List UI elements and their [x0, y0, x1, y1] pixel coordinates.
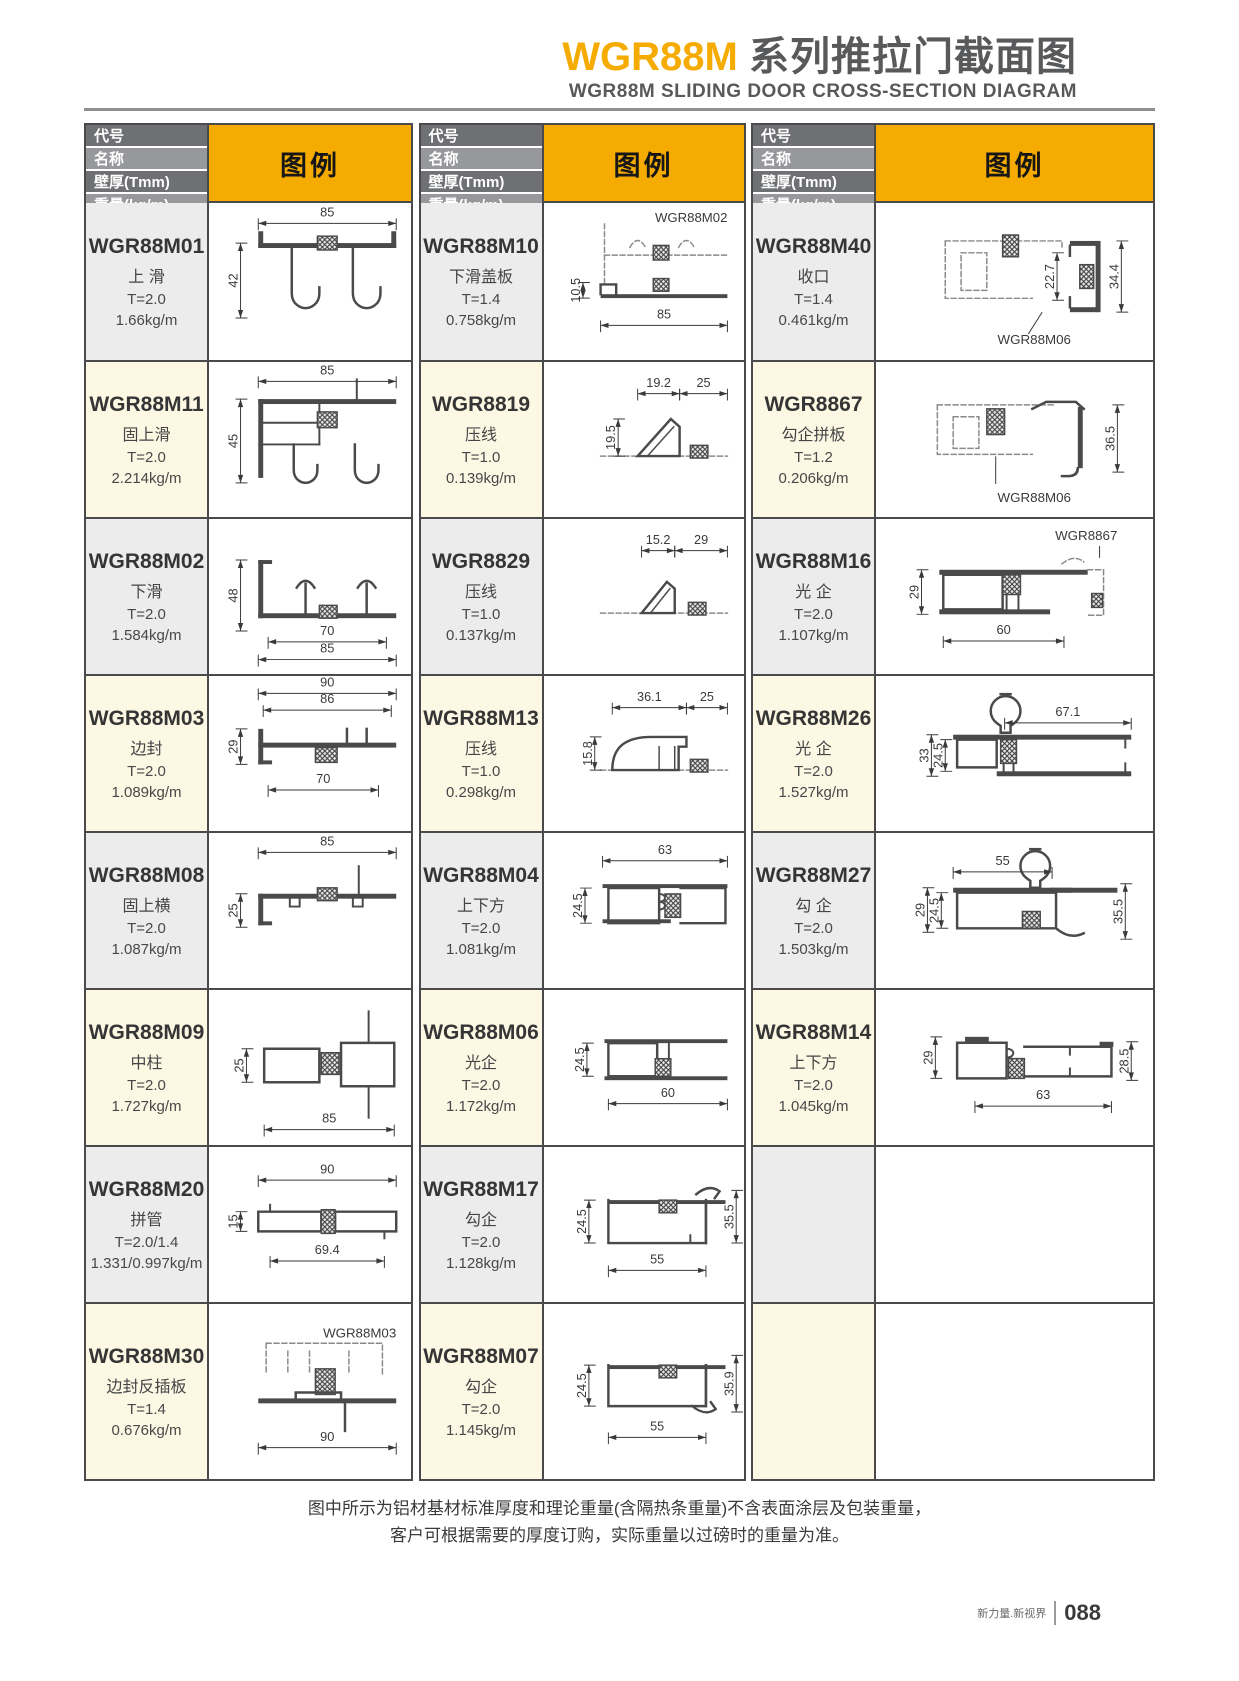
profile-thickness: T=2.0/1.4: [115, 1234, 179, 1251]
profile-name: 固上滑: [122, 421, 170, 445]
profile-row: WGR88M01 上 滑 T=2.0 1.66kg/m 8542: [86, 203, 411, 360]
profile-thickness: T=1.4: [462, 291, 501, 308]
profile-diagram-cell: 10.585WGR88M02: [544, 203, 744, 360]
page-content: WGR88M 系列推拉门截面图 WGR88M SLIDING DOOR CROS…: [0, 0, 1239, 1549]
rows-column-1: WGR88M01 上 滑 T=2.0 1.66kg/m 8542 WGR88M1…: [86, 203, 411, 1479]
profile-name: 勾企拼板: [781, 421, 845, 445]
profile-diagram-cell: 24.560: [544, 990, 744, 1145]
profile-code: WGR8867: [764, 393, 862, 417]
svg-text:67.1: 67.1: [1055, 704, 1080, 719]
profile-code: WGR88M09: [89, 1021, 205, 1045]
profile-diagram-cell: 90862970: [209, 676, 411, 831]
profile-diagram-cell: [876, 1304, 1153, 1479]
profile-thickness: T=2.0: [462, 1077, 501, 1094]
profile-name: 光 企: [795, 735, 831, 759]
profile-code: WGR88M01: [89, 235, 205, 259]
profile-row: WGR8819 压线 T=1.0 0.139kg/m 19.22519.5: [421, 360, 744, 517]
profile-thickness: T=1.2: [794, 449, 833, 466]
profile-info-cell: WGR8819 压线 T=1.0 0.139kg/m: [421, 362, 544, 517]
profile-table: 代号 名称 壁厚(Tmm) 重量(kg/m) 图例 WGR88M01 上 滑 T…: [84, 123, 1155, 1481]
rows-column-3: WGR88M40 收口 T=1.4 0.461kg/m 22.734.4WGR8…: [753, 203, 1153, 1479]
profile-thickness: T=2.0: [794, 1077, 833, 1094]
profile-info-cell: WGR88M14 上下方 T=2.0 1.045kg/m: [753, 990, 876, 1145]
profile-weight: 1.107kg/m: [778, 627, 848, 644]
profile-row: WGR88M04 上下方 T=2.0 1.081kg/m 6324.5: [421, 831, 744, 988]
svg-text:WGR88M03: WGR88M03: [323, 1325, 396, 1340]
svg-text:36.1: 36.1: [637, 690, 662, 704]
profile-code: WGR88M27: [756, 864, 872, 888]
svg-text:25: 25: [231, 1058, 246, 1072]
svg-text:24.5: 24.5: [573, 1047, 587, 1072]
profile-code: WGR8819: [432, 393, 530, 417]
header-label-thickness: 壁厚(Tmm): [421, 171, 542, 192]
svg-text:15: 15: [226, 1214, 241, 1228]
svg-text:24.5: 24.5: [574, 1373, 588, 1398]
profile-name: 勾 企: [795, 892, 831, 916]
profile-info-cell: WGR88M16 光 企 T=2.0 1.107kg/m: [753, 519, 876, 674]
profile-code: WGR88M07: [423, 1345, 539, 1369]
svg-text:29: 29: [694, 533, 708, 547]
profile-code: WGR88M04: [423, 864, 539, 888]
svg-text:55: 55: [650, 1420, 664, 1434]
profile-thickness: T=2.0: [127, 1077, 166, 1094]
page-number: 088: [1064, 1600, 1101, 1626]
profile-row: WGR88M07 勾企 T=2.0 1.145kg/m 24.55535.9: [421, 1302, 744, 1479]
cross-section-diagram: 10.585WGR88M02: [544, 203, 744, 360]
profile-name: 光企: [465, 1049, 497, 1073]
legend-header: 图例: [544, 125, 744, 201]
profile-info-cell: WGR88M20 拼管 T=2.0/1.4 1.331/0.997kg/m: [86, 1147, 209, 1302]
profile-diagram-cell: 2960WGR8867: [876, 519, 1153, 674]
profile-name: 压线: [465, 735, 497, 759]
profile-code: WGR88M40: [756, 235, 872, 259]
cross-section-diagram: 6324.5: [544, 833, 744, 988]
profile-info-cell: WGR88M01 上 滑 T=2.0 1.66kg/m: [86, 203, 209, 360]
profile-thickness: T=1.0: [462, 449, 501, 466]
profile-info-cell: [753, 1304, 876, 1479]
profile-name: 压线: [465, 421, 497, 445]
profile-name: 拼管: [130, 1206, 162, 1230]
svg-text:25: 25: [226, 903, 241, 917]
profile-thickness: T=2.0: [127, 920, 166, 937]
profile-row: WGR88M20 拼管 T=2.0/1.4 1.331/0.997kg/m 90…: [86, 1145, 411, 1302]
svg-text:25: 25: [696, 376, 710, 390]
footer-divider: [1054, 1601, 1056, 1625]
profile-info-cell: WGR8867 勾企拼板 T=1.2 0.206kg/m: [753, 362, 876, 517]
profile-row: WGR88M06 光企 T=2.0 1.172kg/m 24.560: [421, 988, 744, 1145]
table-header-3: 代号 名称 壁厚(Tmm) 重量(kg/m) 图例: [753, 125, 1153, 203]
profile-row: WGR88M27 勾 企 T=2.0 1.503kg/m 552924.535.…: [753, 831, 1153, 988]
profile-diagram-cell: [876, 1147, 1153, 1302]
header-label-code: 代号: [421, 125, 542, 146]
svg-text:29: 29: [912, 903, 927, 917]
column-group-2: 代号 名称 壁厚(Tmm) 重量(kg/m) 图例 WGR88M10 下滑盖板 …: [419, 123, 746, 1481]
profile-diagram-cell: 90WGR88M03: [209, 1304, 411, 1479]
profile-thickness: T=1.4: [127, 1401, 166, 1418]
header-label-thickness: 壁厚(Tmm): [753, 171, 874, 192]
profile-diagram-cell: 19.22519.5: [544, 362, 744, 517]
profile-thickness: T=2.0: [794, 920, 833, 937]
profile-weight: 2.214kg/m: [111, 470, 181, 487]
profile-thickness: T=1.0: [462, 763, 501, 780]
cross-section-diagram: 552924.535.5: [876, 833, 1153, 988]
cross-section-diagram: 22.734.4WGR88M06: [876, 203, 1153, 360]
profile-info-cell: WGR88M10 下滑盖板 T=1.4 0.758kg/m: [421, 203, 544, 360]
svg-text:15.2: 15.2: [645, 533, 670, 547]
profile-row: [753, 1145, 1153, 1302]
svg-text:35.5: 35.5: [722, 1204, 736, 1229]
profile-weight: 1.727kg/m: [111, 1098, 181, 1115]
profile-name: 固上横: [122, 892, 170, 916]
profile-weight: 0.461kg/m: [778, 312, 848, 329]
profile-thickness: T=2.0: [462, 920, 501, 937]
svg-text:WGR88M02: WGR88M02: [655, 210, 727, 225]
cross-section-diagram: 487085: [209, 519, 411, 674]
svg-text:60: 60: [996, 622, 1010, 637]
profile-row: WGR88M13 压线 T=1.0 0.298kg/m 36.12515.8: [421, 674, 744, 831]
profile-code: WGR88M26: [756, 707, 872, 731]
profile-weight: 0.758kg/m: [446, 312, 516, 329]
table-header-2: 代号 名称 壁厚(Tmm) 重量(kg/m) 图例: [421, 125, 744, 203]
svg-text:19.2: 19.2: [646, 376, 671, 390]
profile-info-cell: [753, 1147, 876, 1302]
profile-info-cell: WGR88M26 光 企 T=2.0 1.527kg/m: [753, 676, 876, 831]
profile-code: WGR88M13: [423, 707, 539, 731]
svg-text:55: 55: [995, 853, 1009, 868]
profile-thickness: T=2.0: [127, 606, 166, 623]
column-group-1: 代号 名称 壁厚(Tmm) 重量(kg/m) 图例 WGR88M01 上 滑 T…: [84, 123, 413, 1481]
svg-text:34.4: 34.4: [1106, 264, 1121, 289]
svg-text:85: 85: [656, 308, 670, 322]
profile-row: WGR88M16 光 企 T=2.0 1.107kg/m 2960WGR8867: [753, 517, 1153, 674]
profile-diagram-cell: 901569.4: [209, 1147, 411, 1302]
profile-name: 收口: [797, 263, 829, 287]
profile-info-cell: WGR88M40 收口 T=1.4 0.461kg/m: [753, 203, 876, 360]
cross-section-diagram: 24.55535.5: [544, 1147, 744, 1302]
header-label-code: 代号: [753, 125, 874, 146]
profile-name: 边封反插板: [106, 1373, 186, 1397]
profile-row: WGR88M10 下滑盖板 T=1.4 0.758kg/m 10.585WGR8…: [421, 203, 744, 360]
profile-name: 下滑盖板: [449, 263, 513, 287]
svg-text:85: 85: [320, 641, 334, 656]
svg-text:90: 90: [320, 676, 334, 689]
svg-text:85: 85: [320, 362, 334, 377]
svg-text:24.5: 24.5: [574, 1209, 588, 1234]
svg-text:29: 29: [907, 585, 922, 599]
cross-section-diagram: 24.55535.9: [544, 1304, 744, 1479]
profile-code: WGR88M16: [756, 550, 872, 574]
profile-code: WGR88M06: [423, 1021, 539, 1045]
svg-text:42: 42: [226, 273, 241, 287]
svg-text:WGR8867: WGR8867: [1055, 528, 1117, 543]
profile-weight: 0.137kg/m: [446, 627, 516, 644]
profile-weight: 1.66kg/m: [116, 312, 178, 329]
profile-name: 下滑: [130, 578, 162, 602]
table-header-1: 代号 名称 壁厚(Tmm) 重量(kg/m) 图例: [86, 125, 411, 203]
profile-name: 勾企: [465, 1206, 497, 1230]
page-subtitle: WGR88M SLIDING DOOR CROSS-SECTION DIAGRA…: [84, 81, 1077, 103]
profile-row: WGR88M40 收口 T=1.4 0.461kg/m 22.734.4WGR8…: [753, 203, 1153, 360]
svg-text:24.5: 24.5: [571, 893, 585, 918]
footer-note: 图中所示为铝材基材标准厚度和理论重量(含隔热条重量)不含表面涂层及包装重量， 客…: [84, 1495, 1155, 1549]
profile-info-cell: WGR8829 压线 T=1.0 0.137kg/m: [421, 519, 544, 674]
header-label-thickness: 壁厚(Tmm): [86, 171, 207, 192]
cross-section-diagram: 2928.563: [876, 990, 1153, 1145]
page-header: WGR88M 系列推拉门截面图 WGR88M SLIDING DOOR CROS…: [84, 36, 1155, 103]
profile-row: WGR88M03 边封 T=2.0 1.089kg/m 90862970: [86, 674, 411, 831]
profile-info-cell: WGR88M03 边封 T=2.0 1.089kg/m: [86, 676, 209, 831]
header-label-name: 名称: [753, 148, 874, 169]
svg-text:10.5: 10.5: [569, 278, 583, 303]
header-labels: 代号 名称 壁厚(Tmm) 重量(kg/m): [86, 125, 209, 201]
profile-row: WGR88M09 中柱 T=2.0 1.727kg/m 2585: [86, 988, 411, 1145]
profile-row: [753, 1302, 1153, 1479]
profile-thickness: T=1.4: [794, 291, 833, 308]
profile-thickness: T=2.0: [462, 1234, 501, 1251]
svg-text:60: 60: [660, 1086, 674, 1100]
svg-text:35.5: 35.5: [1110, 899, 1125, 924]
profile-row: WGR88M02 下滑 T=2.0 1.584kg/m 487085: [86, 517, 411, 674]
cross-section-diagram: 2585: [209, 990, 411, 1145]
profile-row: WGR8867 勾企拼板 T=1.2 0.206kg/m 36.5WGR88M0…: [753, 360, 1153, 517]
svg-text:29: 29: [226, 739, 241, 753]
title-rule: [84, 108, 1155, 111]
svg-text:24.5: 24.5: [926, 898, 941, 923]
header-label-name: 名称: [421, 148, 542, 169]
profile-thickness: T=2.0: [127, 449, 166, 466]
profile-weight: 0.139kg/m: [446, 470, 516, 487]
page-title-code: WGR88M: [562, 35, 738, 79]
rows-column-2: WGR88M10 下滑盖板 T=1.4 0.758kg/m 10.585WGR8…: [421, 203, 744, 1479]
svg-text:90: 90: [320, 1161, 334, 1176]
profile-weight: 1.172kg/m: [446, 1098, 516, 1115]
svg-text:86: 86: [320, 691, 334, 706]
profile-name: 边封: [130, 735, 162, 759]
profile-diagram-cell: 487085: [209, 519, 411, 674]
profile-info-cell: WGR88M02 下滑 T=2.0 1.584kg/m: [86, 519, 209, 674]
cross-section-diagram: [876, 1147, 1153, 1302]
cross-section-diagram: 15.229: [544, 519, 744, 674]
profile-diagram-cell: 8542: [209, 203, 411, 360]
svg-text:15.8: 15.8: [580, 741, 594, 766]
page-footer: 新力量.新视界 088: [977, 1600, 1101, 1626]
svg-text:90: 90: [320, 1429, 334, 1444]
profile-diagram-cell: 15.229: [544, 519, 744, 674]
profile-row: WGR88M30 边封反插板 T=1.4 0.676kg/m 90WGR88M0…: [86, 1302, 411, 1479]
cross-section-diagram: 8545: [209, 362, 411, 517]
cross-section-diagram: 36.5WGR88M06: [876, 362, 1153, 517]
profile-thickness: T=2.0: [127, 291, 166, 308]
profile-diagram-cell: 2928.563: [876, 990, 1153, 1145]
profile-thickness: T=2.0: [794, 763, 833, 780]
svg-text:45: 45: [226, 434, 241, 448]
svg-text:33: 33: [916, 748, 931, 762]
svg-text:25: 25: [699, 690, 713, 704]
profile-info-cell: WGR88M08 固上横 T=2.0 1.087kg/m: [86, 833, 209, 988]
profile-diagram-cell: 24.55535.9: [544, 1304, 744, 1479]
svg-text:36.5: 36.5: [1102, 426, 1117, 451]
profile-diagram-cell: 36.5WGR88M06: [876, 362, 1153, 517]
profile-info-cell: WGR88M09 中柱 T=2.0 1.727kg/m: [86, 990, 209, 1145]
profile-diagram-cell: 8525: [209, 833, 411, 988]
profile-code: WGR88M11: [89, 393, 203, 417]
profile-info-cell: WGR88M04 上下方 T=2.0 1.081kg/m: [421, 833, 544, 988]
svg-text:28.5: 28.5: [1116, 1049, 1131, 1074]
profile-thickness: T=1.0: [462, 606, 501, 623]
profile-thickness: T=2.0: [462, 1401, 501, 1418]
profile-code: WGR8829: [432, 550, 530, 574]
legend-header: 图例: [209, 125, 411, 201]
cross-section-diagram: 2960WGR8867: [876, 519, 1153, 674]
profile-diagram-cell: 2585: [209, 990, 411, 1145]
profile-info-cell: WGR88M11 固上滑 T=2.0 2.214kg/m: [86, 362, 209, 517]
profile-info-cell: WGR88M27 勾 企 T=2.0 1.503kg/m: [753, 833, 876, 988]
profile-code: WGR88M03: [89, 707, 205, 731]
svg-text:85: 85: [320, 833, 334, 848]
profile-row: WGR88M26 光 企 T=2.0 1.527kg/m 67.13324.5: [753, 674, 1153, 831]
profile-name: 压线: [465, 578, 497, 602]
profile-row: WGR88M08 固上横 T=2.0 1.087kg/m 8525: [86, 831, 411, 988]
profile-code: WGR88M02: [89, 550, 205, 574]
svg-text:70: 70: [320, 623, 334, 638]
cross-section-diagram: 24.560: [544, 990, 744, 1145]
profile-diagram-cell: 67.13324.5: [876, 676, 1153, 831]
profile-info-cell: WGR88M07 勾企 T=2.0 1.145kg/m: [421, 1304, 544, 1479]
profile-diagram-cell: 36.12515.8: [544, 676, 744, 831]
profile-name: 勾企: [465, 1373, 497, 1397]
profile-weight: 1.087kg/m: [111, 941, 181, 958]
profile-code: WGR88M20: [89, 1178, 205, 1202]
svg-text:WGR88M06: WGR88M06: [998, 490, 1071, 505]
profile-weight: 1.145kg/m: [446, 1422, 516, 1439]
profile-row: WGR88M14 上下方 T=2.0 1.045kg/m 2928.563: [753, 988, 1153, 1145]
profile-info-cell: WGR88M17 勾企 T=2.0 1.128kg/m: [421, 1147, 544, 1302]
svg-text:85: 85: [320, 204, 334, 219]
cross-section-diagram: 67.13324.5: [876, 676, 1153, 831]
svg-text:55: 55: [650, 1253, 664, 1267]
profile-diagram-cell: 8545: [209, 362, 411, 517]
profile-weight: 1.527kg/m: [778, 784, 848, 801]
svg-text:70: 70: [316, 771, 330, 786]
page-title-cn: 系列推拉门截面图: [749, 35, 1077, 79]
cross-section-diagram: 8542: [209, 203, 411, 360]
header-labels: 代号 名称 壁厚(Tmm) 重量(kg/m): [753, 125, 876, 201]
profile-weight: 0.206kg/m: [778, 470, 848, 487]
profile-weight: 0.676kg/m: [111, 1422, 181, 1439]
svg-text:48: 48: [226, 588, 241, 602]
svg-text:63: 63: [1036, 1087, 1050, 1102]
profile-row: WGR8829 压线 T=1.0 0.137kg/m 15.229: [421, 517, 744, 674]
profile-weight: 1.089kg/m: [111, 784, 181, 801]
profile-name: 中柱: [130, 1049, 162, 1073]
profile-code: WGR88M30: [89, 1345, 205, 1369]
footer-note-line1: 图中所示为铝材基材标准厚度和理论重量(含隔热条重量)不含表面涂层及包装重量，: [84, 1495, 1155, 1522]
cross-section-diagram: 90WGR88M03: [209, 1304, 411, 1479]
profile-code: WGR88M17: [423, 1178, 539, 1202]
cross-section-diagram: 19.22519.5: [544, 362, 744, 517]
profile-weight: 1.045kg/m: [778, 1098, 848, 1115]
legend-header: 图例: [876, 125, 1153, 201]
profile-row: WGR88M17 勾企 T=2.0 1.128kg/m 24.55535.5: [421, 1145, 744, 1302]
profile-weight: 1.584kg/m: [111, 627, 181, 644]
profile-name: 上下方: [457, 892, 505, 916]
brand-text: 新力量.新视界: [977, 1605, 1046, 1621]
profile-row: WGR88M11 固上滑 T=2.0 2.214kg/m 8545: [86, 360, 411, 517]
profile-diagram-cell: 24.55535.5: [544, 1147, 744, 1302]
profile-code: WGR88M10: [423, 235, 539, 259]
svg-text:63: 63: [657, 843, 671, 857]
profile-info-cell: WGR88M30 边封反插板 T=1.4 0.676kg/m: [86, 1304, 209, 1479]
profile-diagram-cell: 6324.5: [544, 833, 744, 988]
column-group-3: 代号 名称 壁厚(Tmm) 重量(kg/m) 图例 WGR88M40 收口 T=…: [751, 123, 1155, 1481]
profile-name: 上 滑: [128, 263, 164, 287]
profile-name: 光 企: [795, 578, 831, 602]
svg-text:WGR88M06: WGR88M06: [998, 332, 1071, 347]
header-label-name: 名称: [86, 148, 207, 169]
svg-text:85: 85: [322, 1111, 336, 1126]
profile-thickness: T=2.0: [127, 763, 166, 780]
profile-code: WGR88M08: [89, 864, 205, 888]
cross-section-diagram: 36.12515.8: [544, 676, 744, 831]
profile-weight: 1.081kg/m: [446, 941, 516, 958]
footer-note-line2: 客户可根据需要的厚度订购，实际重量以过磅时的重量为准。: [84, 1522, 1155, 1549]
svg-text:24.5: 24.5: [930, 743, 945, 768]
header-label-code: 代号: [86, 125, 207, 146]
page-title: WGR88M 系列推拉门截面图: [84, 36, 1077, 78]
svg-text:35.9: 35.9: [722, 1371, 736, 1396]
profile-diagram-cell: 552924.535.5: [876, 833, 1153, 988]
cross-section-diagram: 8525: [209, 833, 411, 988]
profile-thickness: T=2.0: [794, 606, 833, 623]
cross-section-diagram: [876, 1304, 1153, 1479]
profile-weight: 1.128kg/m: [446, 1255, 516, 1272]
svg-text:29: 29: [920, 1050, 935, 1064]
profile-name: 上下方: [789, 1049, 837, 1073]
svg-text:22.7: 22.7: [1042, 264, 1057, 289]
cross-section-diagram: 90862970: [209, 676, 411, 831]
svg-text:69.4: 69.4: [315, 1242, 340, 1257]
profile-diagram-cell: 22.734.4WGR88M06: [876, 203, 1153, 360]
profile-weight: 1.331/0.997kg/m: [91, 1255, 203, 1272]
profile-weight: 1.503kg/m: [778, 941, 848, 958]
profile-info-cell: WGR88M13 压线 T=1.0 0.298kg/m: [421, 676, 544, 831]
svg-text:19.5: 19.5: [604, 425, 618, 450]
header-labels: 代号 名称 壁厚(Tmm) 重量(kg/m): [421, 125, 544, 201]
profile-weight: 0.298kg/m: [446, 784, 516, 801]
cross-section-diagram: 901569.4: [209, 1147, 411, 1302]
profile-code: WGR88M14: [756, 1021, 872, 1045]
profile-info-cell: WGR88M06 光企 T=2.0 1.172kg/m: [421, 990, 544, 1145]
